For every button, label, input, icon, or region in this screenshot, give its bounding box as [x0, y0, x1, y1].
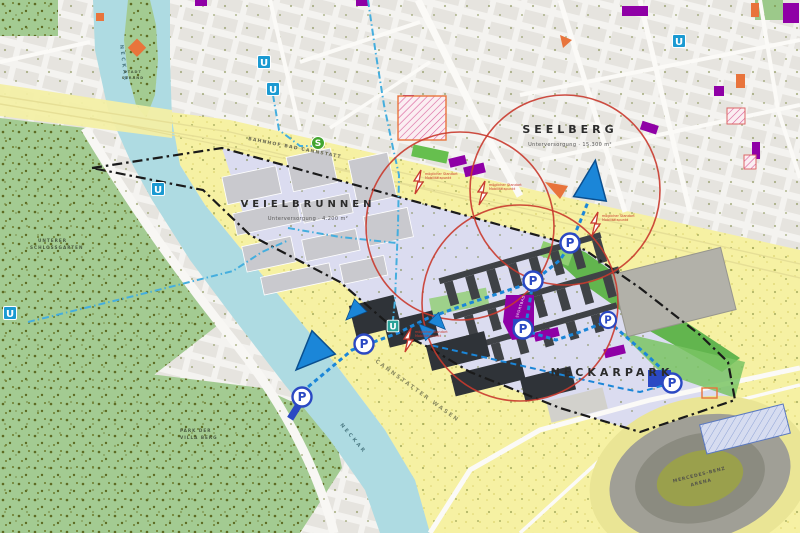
mobility-label-line2: Mobilitätspunkt: [415, 334, 442, 338]
district-label-veielbrunnen: VEIELBRUNNEN: [241, 199, 376, 210]
mobility-label-line2: Mobilitätspunkt: [489, 187, 516, 191]
schlossgarten-label-2: SCHLOSSGARTEN: [30, 245, 83, 250]
map-stage: MERCEDES-BENZ ARENA: [0, 0, 800, 533]
district-sublabel-veielbrunnen: Unterversorgung · 4.200 m²: [268, 216, 348, 222]
parking-marker-icon: P: [514, 320, 533, 339]
villa-berg-label-2: VILLA BERG: [180, 435, 218, 440]
svg-text:P: P: [360, 337, 369, 351]
svg-text:U: U: [269, 85, 277, 96]
district-label-neckarpark: NECKARPARK: [551, 366, 674, 379]
svg-text:U: U: [389, 322, 396, 332]
parking-marker-icon: P: [561, 234, 580, 253]
district-sublabel-seelberg: Unterversorgung · 15.300 m²: [528, 142, 612, 148]
parking-marker-icon: P: [524, 272, 543, 291]
ubahn-station-icon: U: [387, 320, 399, 332]
svg-text:U: U: [6, 309, 14, 320]
svg-text:U: U: [154, 185, 162, 196]
svg-text:P: P: [529, 274, 538, 288]
parking-marker-icon: P: [355, 335, 374, 354]
parking-marker-icon: P: [600, 312, 616, 328]
district-label-seelberg: SEELBERG: [522, 123, 617, 136]
svg-text:P: P: [566, 236, 575, 250]
svg-text:U: U: [260, 58, 268, 69]
svg-text:S: S: [315, 139, 321, 149]
stadtstrand-label-1: STADT: [124, 70, 142, 74]
svg-text:P: P: [519, 322, 528, 336]
mobility-label-line2: Mobilitätspunkt: [425, 176, 452, 180]
mobility-label-line2: Mobilitätspunkt: [602, 218, 629, 222]
svg-text:P: P: [604, 315, 612, 326]
city-plan-map: MERCEDES-BENZ ARENA: [0, 0, 800, 533]
ubahn-station-icon: U: [258, 56, 271, 69]
svg-text:U: U: [675, 37, 683, 48]
ubahn-station-icon: U: [267, 83, 280, 96]
ubahn-station-icon: U: [4, 307, 17, 320]
svg-text:P: P: [298, 390, 307, 404]
stadtstrand-label-2: STRAND: [122, 76, 145, 80]
parking-marker-icon: P: [293, 388, 312, 407]
ubahn-station-icon: U: [152, 183, 165, 196]
ubahn-station-icon: U: [673, 35, 686, 48]
sbahn-station-icon: S: [312, 137, 325, 150]
schlossgarten-label-1: UNTERER: [38, 238, 67, 243]
villa-berg-label-1: PARK DER: [180, 428, 211, 433]
